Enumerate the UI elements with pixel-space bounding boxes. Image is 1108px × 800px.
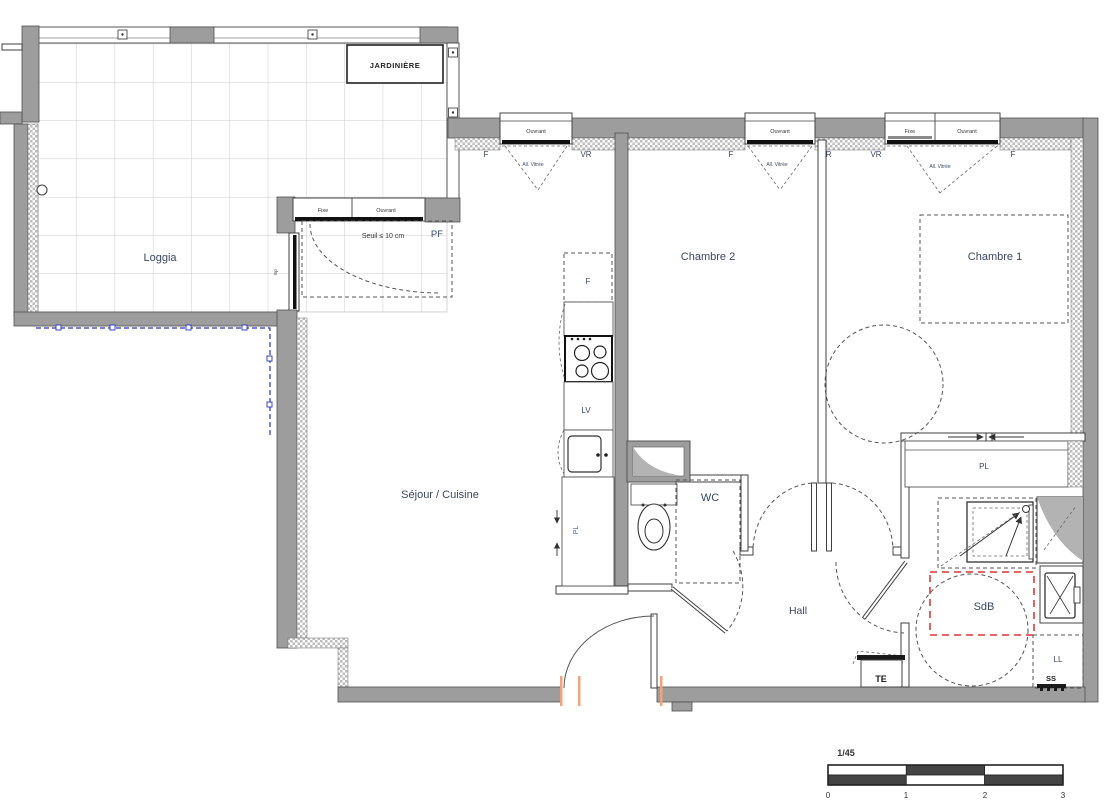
seuil-label: Seuil ≤ 10 cm: [362, 233, 405, 240]
loggia-railing-top: [38, 27, 448, 43]
window-f-label: F: [729, 150, 734, 159]
kitchen: F LV PL: [557, 253, 614, 586]
loggia-left-wall-upper: [22, 26, 39, 122]
west-wall: [277, 310, 297, 648]
kitchen-sink: [564, 430, 613, 477]
chambre2-door-leaf: [812, 483, 817, 551]
scale-bar-segments: [828, 765, 1063, 785]
kitchen-closet-label: PL: [573, 526, 580, 535]
chambre1-label: Chambre 1: [968, 251, 1022, 263]
window-vr-label: VR: [870, 150, 881, 159]
wc-label: WC: [701, 492, 719, 504]
pf-corner-wall: [425, 198, 460, 222]
chambre2-door-arc: [753, 483, 812, 551]
sdb-turning-circle: [916, 574, 1028, 686]
allege-label: All. Vitrée: [522, 162, 544, 168]
fridge-label: F: [586, 277, 591, 286]
wc-room: WC: [627, 441, 740, 583]
insulation-strip: [28, 124, 38, 314]
kitchen-counter-edge: [556, 586, 628, 594]
sdb-door-arc: [836, 562, 904, 633]
scale-bar: 1/45 0 1 2 3: [826, 748, 1066, 800]
partition-chambres: [818, 140, 826, 483]
scale-tick-3: 3: [1061, 791, 1066, 800]
shower: [938, 498, 1036, 568]
hall-label: Hall: [789, 605, 807, 617]
pf-fixe-label: Fixe: [318, 208, 328, 214]
jardiniere-label: JARDINIÈRE: [370, 61, 420, 70]
bottom-wall-notch: [672, 702, 692, 711]
allege-triangle: [907, 146, 997, 193]
pf-ouvrant-label: Ouvrant: [376, 208, 396, 214]
dishwasher-label: LV: [581, 406, 591, 415]
scale-tick-1: 1: [904, 791, 909, 800]
sdb-sink: [1040, 566, 1083, 623]
sdb-closet: PL: [905, 433, 1068, 487]
kitchen-closet: PL: [557, 477, 614, 586]
window-sash-label: Ouvrant: [526, 129, 546, 135]
sdb-label: SdB: [974, 601, 995, 613]
bottom-wall-right: [657, 687, 1085, 702]
window-chambre1: Fixe Ouvrant VR F All. Vitrée: [870, 113, 1015, 193]
vanity-unit: [1037, 497, 1083, 563]
window-fixe-label: Fixe: [905, 129, 915, 135]
allege-label: All. Vitrée: [929, 164, 951, 170]
chambre1-door-leaf: [827, 483, 832, 551]
downspout-mark: [2, 44, 22, 50]
window-vr-label: VR: [580, 150, 591, 159]
chambre1-turning-circle: [825, 325, 943, 443]
railing-post-block: [420, 27, 458, 43]
allege-label: All. Vitrée: [766, 162, 788, 168]
kitchen-wall: [615, 133, 628, 592]
sejour-label: Séjour / Cuisine: [401, 489, 479, 501]
electrical-panel-label: TE: [875, 674, 887, 684]
chambre1-bed-outline: [920, 215, 1068, 323]
entrance-door-marks: [560, 676, 663, 706]
loggia-label: Loggia: [143, 252, 177, 264]
scale-ratio-label: 1/45: [837, 748, 855, 758]
sdb-closet-label: PL: [979, 462, 989, 471]
guardrail-posts: [56, 325, 272, 407]
loggia-left-wall-lower: [14, 124, 28, 316]
window-f-label: F: [484, 150, 489, 159]
fixed-glazing-line: [293, 235, 297, 309]
wc-north-wall: [690, 475, 748, 482]
interior-walls: [556, 133, 1085, 687]
entrance-door-arc: [564, 616, 654, 688]
washing-machine-label: LL: [1054, 655, 1063, 664]
chambre2-label: Chambre 2: [681, 251, 735, 263]
floor-drain-label: SS: [1046, 674, 1056, 683]
pf-glazing-line: [295, 217, 423, 221]
chambre1-door-arc: [832, 483, 893, 551]
allege-triangle: [748, 146, 812, 190]
toilet: [631, 484, 677, 550]
kitchen-counter: [564, 302, 613, 336]
scale-tick-0: 0: [826, 791, 831, 800]
loggia-wall-step: [0, 112, 22, 124]
allege-triangle: [505, 146, 567, 190]
guardrail-blue-line: [36, 328, 270, 438]
railing-post-block: [170, 27, 214, 43]
duct-label: Ep: [273, 269, 278, 275]
right-wall: [1083, 118, 1098, 702]
hand-basin: [627, 441, 690, 482]
drain-circle-icon: [37, 185, 47, 195]
cooktop: [565, 336, 612, 382]
scale-tick-2: 2: [983, 791, 988, 800]
floor-plan-page: JARDINIÈRE Loggia Fixe Ouvrant Ep: [0, 0, 1108, 800]
loggia-bottom-wall: [14, 312, 285, 326]
pf-corner-wall: [277, 197, 295, 233]
loggia-area: JARDINIÈRE Loggia: [0, 26, 459, 438]
bottom-wall-left: [338, 687, 562, 702]
entrance-door-leaf: [651, 614, 657, 688]
window-sash-label: Ouvrant: [770, 129, 790, 135]
window-sash-label: Ouvrant: [957, 129, 977, 135]
wc-south-wall: [628, 584, 672, 591]
pf-label: PF: [431, 229, 443, 240]
electrical-panel: TE: [853, 651, 905, 687]
window-f-label: F: [1011, 150, 1016, 159]
wc-east-wall: [741, 475, 748, 551]
sdb-room: PL SdB LL SS: [905, 433, 1083, 691]
floor-plan-drawing: JARDINIÈRE Loggia Fixe Ouvrant Ep: [0, 0, 1108, 800]
